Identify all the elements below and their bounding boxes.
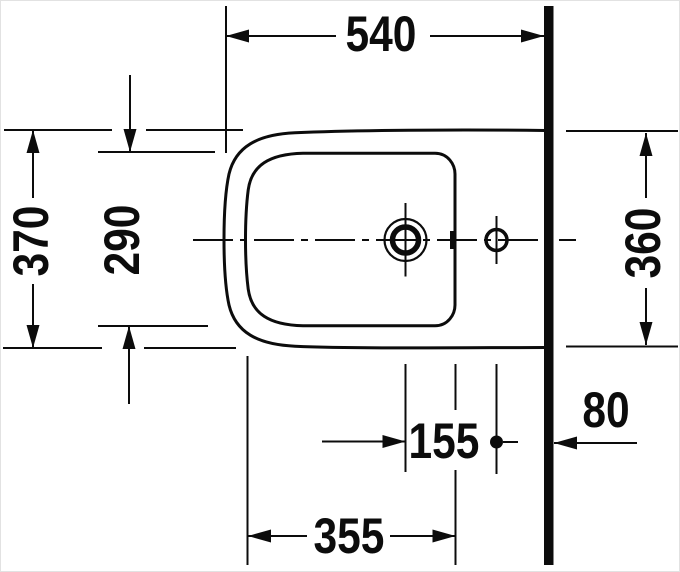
dim-80 [554,437,637,450]
technical-drawing-bidet-top-view: 540 370 290 360 155 80 355 [0,0,680,572]
dim-155-dot [490,436,503,449]
drawing-lines [0,0,680,572]
wall-line [544,6,554,565]
